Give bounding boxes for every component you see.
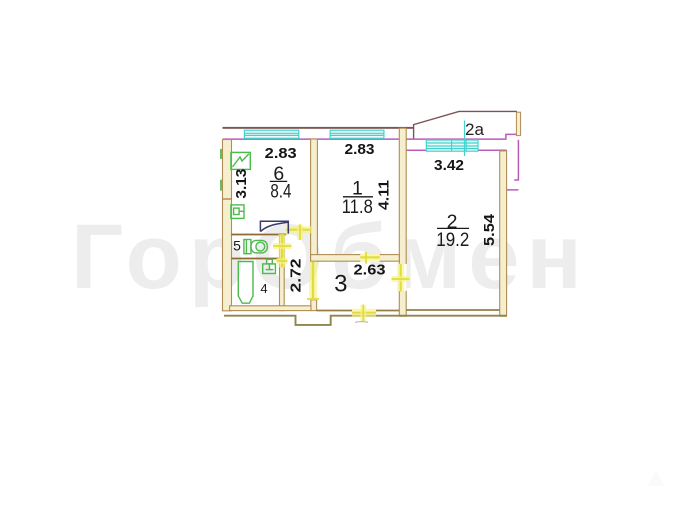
- svg-text:4.11: 4.11: [377, 180, 393, 210]
- svg-text:2а: 2а: [465, 120, 484, 139]
- svg-text:2.63: 2.63: [354, 262, 386, 278]
- svg-text:5: 5: [233, 238, 241, 254]
- svg-text:4: 4: [260, 281, 267, 296]
- svg-text:2.72: 2.72: [288, 259, 304, 293]
- svg-text:3.13: 3.13: [234, 169, 250, 199]
- svg-text:8.4: 8.4: [270, 181, 291, 203]
- svg-text:2.83: 2.83: [345, 142, 375, 158]
- svg-text:3: 3: [334, 271, 347, 298]
- svg-text:3.42: 3.42: [434, 158, 464, 174]
- svg-text:11.8: 11.8: [342, 196, 373, 218]
- svg-text:2.83: 2.83: [265, 146, 297, 162]
- svg-text:19.2: 19.2: [436, 229, 469, 251]
- svg-text:5.54: 5.54: [482, 214, 498, 246]
